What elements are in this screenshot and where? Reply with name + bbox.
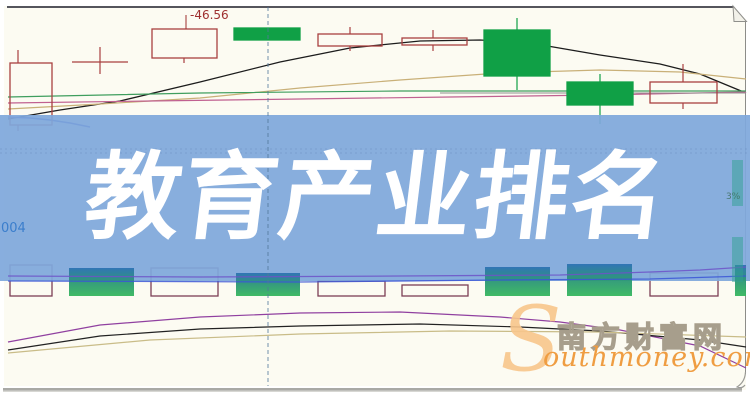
volume-bar-solid	[485, 267, 550, 296]
page-curl-bottom-right-icon	[737, 372, 746, 388]
screenshot-root: -46.56 教育产业排名 004 3% S 南方财富网 outhmoney.c…	[0, 0, 750, 400]
right-percent-label: 3%	[726, 192, 740, 202]
price-marker-label: -46.56	[190, 8, 229, 22]
left-axis-label: 004	[1, 221, 26, 236]
right-edge-bar	[732, 237, 743, 282]
banner-title: 教育产业排名	[56, 146, 699, 250]
